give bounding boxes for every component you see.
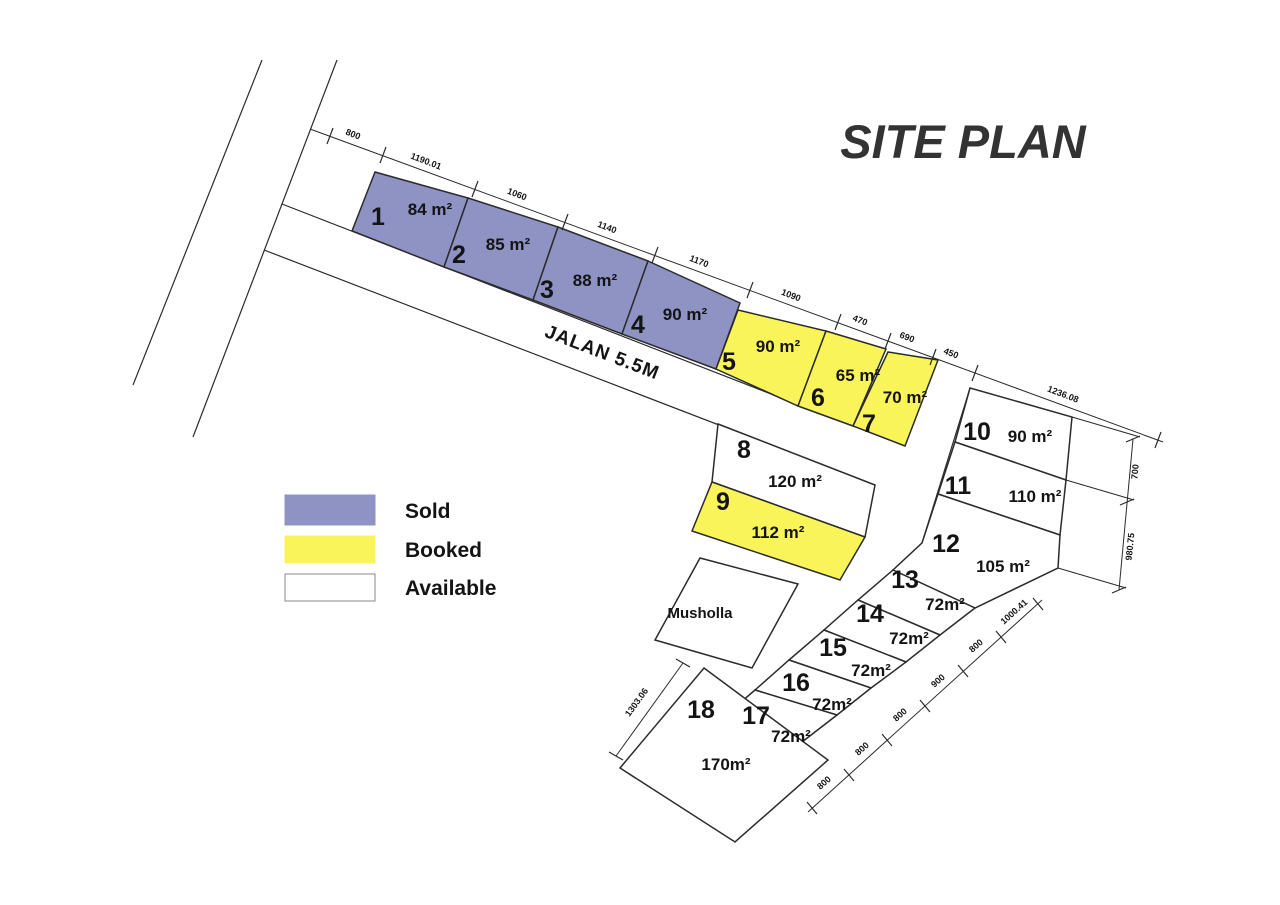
dim-top-3: 1140 bbox=[596, 219, 618, 235]
plots bbox=[352, 172, 1072, 842]
dim-top-6: 470 bbox=[851, 313, 869, 328]
plot-2-number: 2 bbox=[452, 241, 466, 269]
dim-top-2: 1060 bbox=[506, 186, 528, 203]
plot-14-area: 72m² bbox=[889, 629, 929, 648]
dim-bottom-0: 1000.41 bbox=[999, 597, 1030, 626]
dim-top-4: 1170 bbox=[688, 253, 710, 269]
dimension-line-top: 800 1190.01 1060 1140 1170 1090 470 690 … bbox=[310, 127, 1163, 448]
legend-label-booked: Booked bbox=[405, 539, 482, 562]
legend-label-sold: Sold bbox=[405, 500, 451, 523]
plot-6-number: 6 bbox=[811, 384, 825, 412]
plot-10-area: 90 m² bbox=[1008, 427, 1053, 446]
plot-14-number: 14 bbox=[856, 600, 884, 628]
plot-15-area: 72m² bbox=[851, 661, 891, 680]
plot-9-number: 9 bbox=[716, 488, 730, 516]
dim-top-5: 1090 bbox=[780, 287, 802, 304]
dim-top-7: 690 bbox=[898, 330, 916, 345]
dim-top-1: 1190.01 bbox=[409, 151, 443, 172]
plot-1-area: 84 m² bbox=[408, 200, 453, 219]
plot-17-area: 72m² bbox=[771, 727, 811, 746]
plot-1-number: 1 bbox=[371, 203, 385, 231]
plot-10-number: 10 bbox=[963, 418, 991, 446]
plot-9-area: 112 m² bbox=[752, 523, 805, 542]
dim-bottom-4: 800 bbox=[853, 740, 871, 757]
plot-4-number: 4 bbox=[631, 311, 645, 339]
plot-6-area: 65 m² bbox=[836, 366, 881, 385]
musholla-label: Musholla bbox=[667, 605, 733, 622]
dim-top-9: 1236.08 bbox=[1046, 384, 1080, 405]
plot-11-number: 11 bbox=[945, 472, 972, 500]
plot-8-number: 8 bbox=[737, 436, 751, 464]
plot-2-area: 85 m² bbox=[486, 235, 531, 254]
site-plan-page: 1 2 3 4 5 6 7 8 9 10 11 12 13 14 15 16 1… bbox=[0, 0, 1280, 905]
dimension-line-right: 700 980.75 bbox=[1058, 417, 1141, 593]
plot-11-area: 110 m² bbox=[1009, 487, 1062, 506]
plot-5-area: 90 m² bbox=[756, 337, 801, 356]
plot-13-area: 72m² bbox=[925, 595, 965, 614]
dim-right-1: 980.75 bbox=[1124, 532, 1137, 560]
plot-8-area: 120 m² bbox=[768, 472, 822, 491]
plot-3-number: 3 bbox=[540, 276, 554, 304]
plot-12-number: 12 bbox=[932, 530, 960, 558]
plot-7-number: 7 bbox=[862, 410, 876, 438]
plot-7-area: 70 m² bbox=[883, 388, 928, 407]
dim-top-8: 450 bbox=[942, 346, 960, 361]
plot-5-number: 5 bbox=[722, 348, 736, 376]
left-road-edge-1 bbox=[133, 60, 262, 385]
site-plan-drawing: 1 2 3 4 5 6 7 8 9 10 11 12 13 14 15 16 1… bbox=[0, 0, 1280, 905]
plot-18-number: 18 bbox=[687, 696, 715, 724]
dim-bottom-3: 800 bbox=[891, 706, 909, 723]
plot-3-area: 88 m² bbox=[573, 271, 618, 290]
plot-12-area: 105 m² bbox=[976, 557, 1030, 576]
legend: Sold Booked Available bbox=[285, 495, 496, 601]
plot-15-number: 15 bbox=[819, 634, 847, 662]
plot-13-number: 13 bbox=[891, 566, 919, 594]
page-title: SITE PLAN bbox=[840, 115, 1087, 168]
plot-16-number: 16 bbox=[782, 669, 810, 697]
dim-right-0: 700 bbox=[1129, 464, 1141, 480]
legend-swatch-booked bbox=[285, 536, 375, 563]
left-road-edge-2 bbox=[193, 60, 337, 437]
legend-swatch-sold bbox=[285, 495, 375, 525]
plot-4-area: 90 m² bbox=[663, 305, 708, 324]
dim-bottom-5: 800 bbox=[815, 774, 833, 791]
plot-18-area: 170m² bbox=[701, 755, 750, 774]
legend-swatch-available bbox=[285, 574, 375, 601]
legend-label-available: Available bbox=[405, 577, 496, 600]
dim-bottom-2: 900 bbox=[929, 672, 947, 689]
plot-17-number: 17 bbox=[742, 702, 770, 730]
dim-top-0: 800 bbox=[344, 127, 362, 142]
plot-16-area: 72m² bbox=[812, 695, 852, 714]
dim-bottom-1: 800 bbox=[967, 637, 985, 654]
